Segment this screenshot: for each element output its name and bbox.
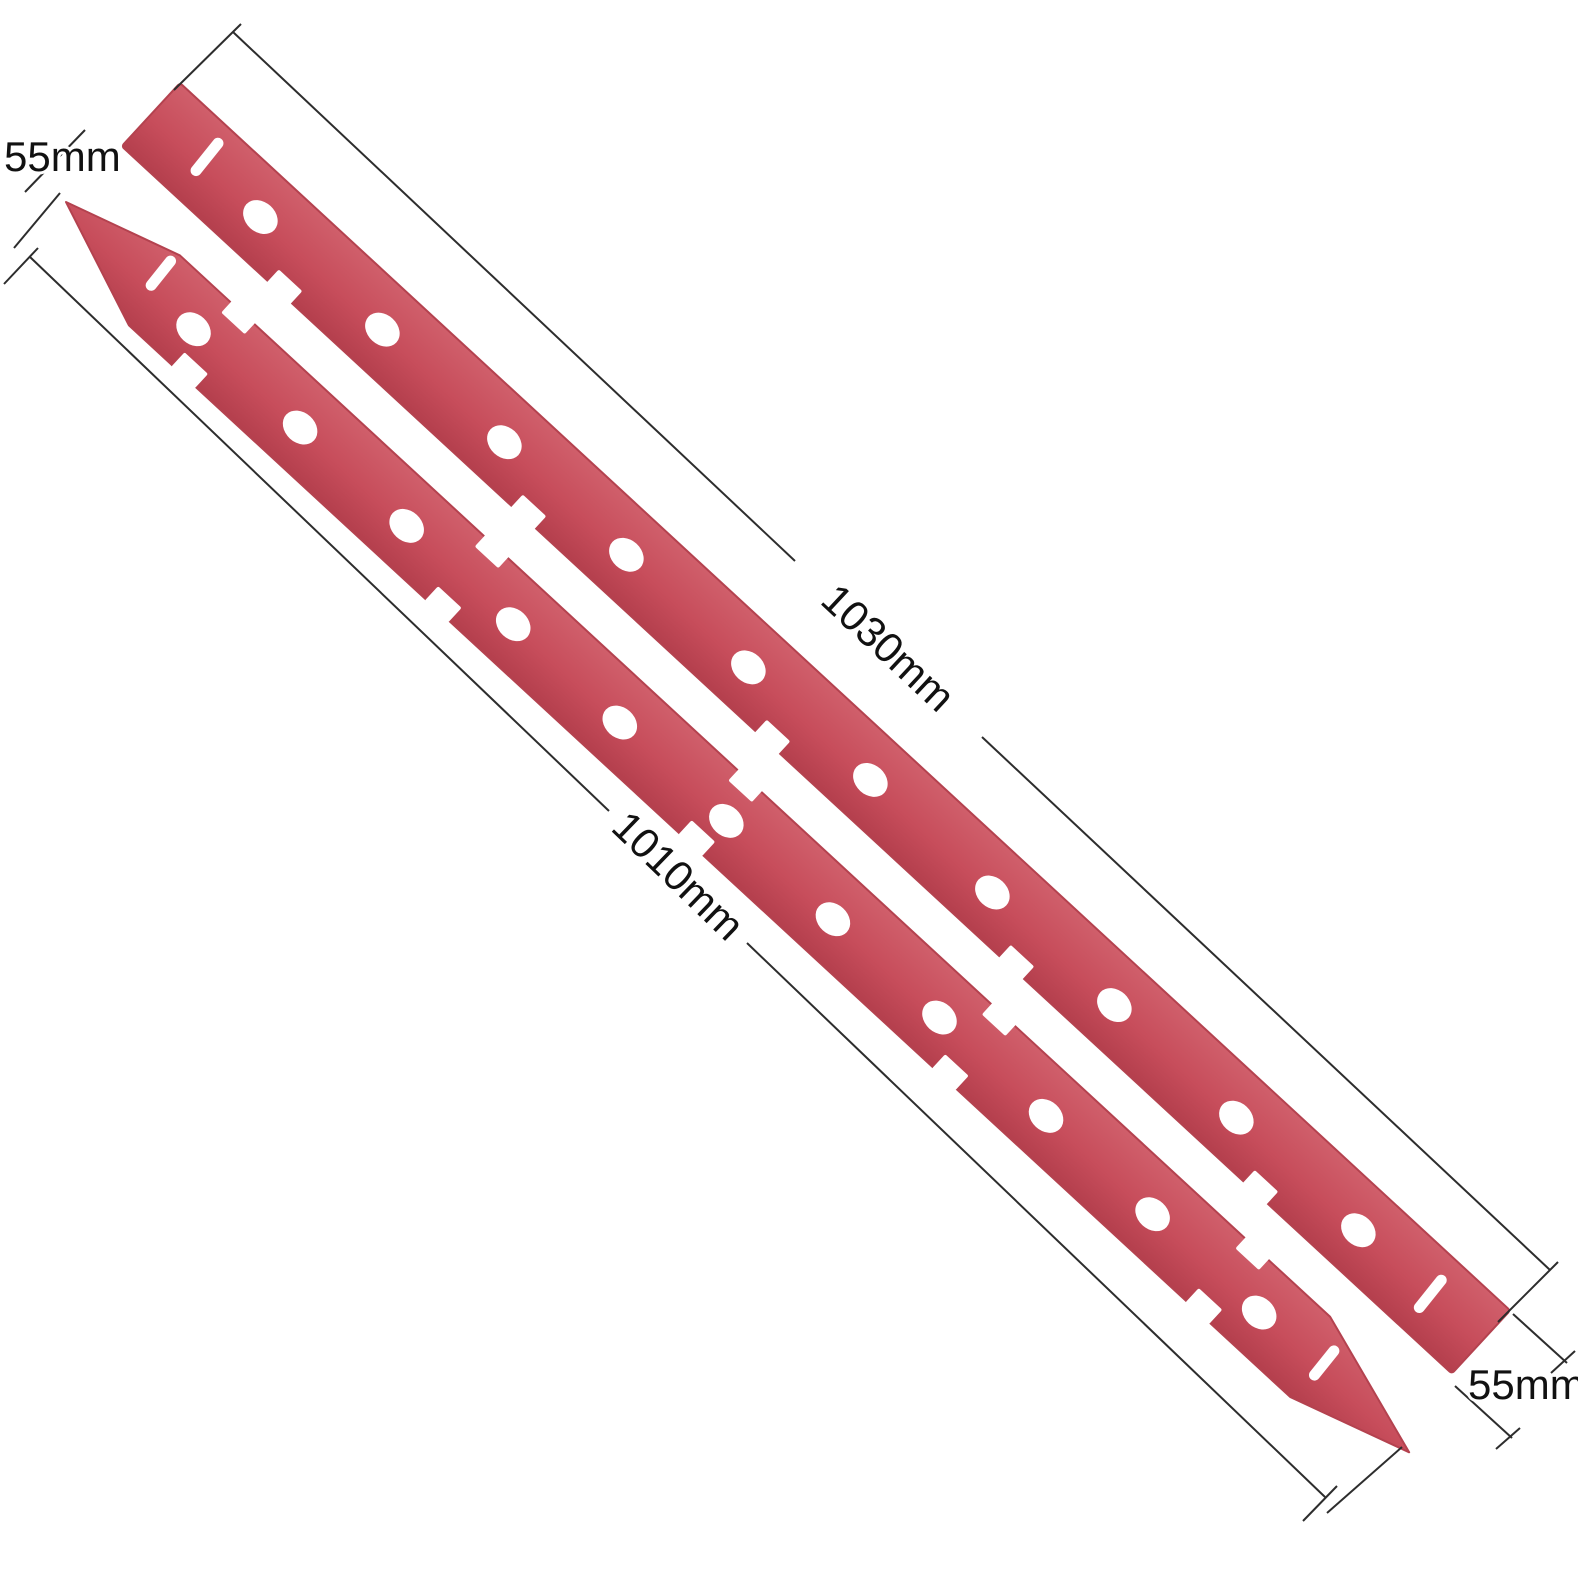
ext-line-55br-upper bbox=[1513, 1314, 1567, 1363]
dim-tick-1030-start bbox=[174, 24, 241, 90]
blade-top-body bbox=[122, 83, 1511, 1374]
dim-tick-1030-end bbox=[1498, 1262, 1558, 1322]
dimension-diagram: 55mm 1030mm 1010mm 55mm bbox=[0, 0, 1578, 1578]
ext-line-55tl-lower bbox=[14, 193, 60, 248]
dim-line-1010-a bbox=[30, 257, 609, 811]
blade-bottom bbox=[32, 171, 1443, 1483]
label-width-top-left: 55mm bbox=[4, 133, 121, 180]
dim-tick-1010-start bbox=[4, 248, 38, 284]
ext-line-1010-tip bbox=[1327, 1447, 1402, 1513]
label-width-bottom-right: 55mm bbox=[1468, 1361, 1578, 1408]
ext-tick-55br-lower bbox=[1496, 1428, 1520, 1449]
dim-line-1010-b bbox=[747, 943, 1325, 1497]
blade-top bbox=[119, 83, 1510, 1377]
product-image: 55mm 1030mm 1010mm 55mm bbox=[0, 0, 1578, 1578]
